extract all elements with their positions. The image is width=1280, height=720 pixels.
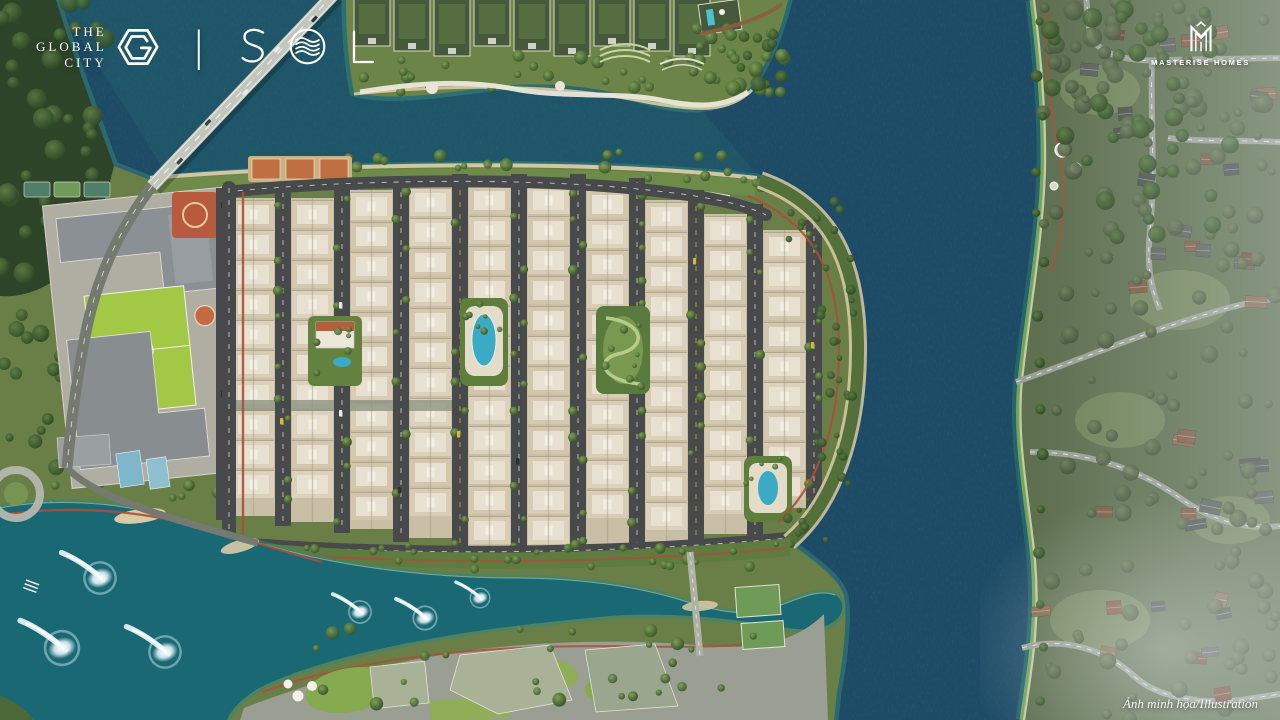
pool-amenity [743,456,792,522]
garden-amenity [596,306,650,394]
playground [172,192,218,238]
masterise-homes-logo: MASTERISE HOMES [1151,20,1250,67]
sports-courts [24,182,110,197]
tennis-court [735,585,781,618]
clubhouse [308,316,362,386]
illustration-disclaimer: Ảnh minh họa/Illustration [1123,696,1258,712]
aerial-render-frame: THE GLOBAL CITY | MASTERISE HOMES Ảnh mi… [0,0,1280,720]
tent [284,680,293,689]
tennis-court [741,621,785,650]
hexagon-g-logo-icon [117,26,159,68]
tent [307,681,317,691]
masterise-wordmark: MASTERISE HOMES [1151,58,1250,67]
global-city-wordmark: THE GLOBAL CITY [36,24,107,70]
townhouse-grid [216,174,823,552]
masterise-m-monogram-icon [1188,20,1214,53]
tent [293,691,304,702]
logo-divider: | [195,27,201,67]
the-global-city-logo: THE GLOBAL CITY | [36,24,378,70]
masterplan-scene [0,0,1280,720]
pool-amenity [460,298,508,386]
waterfront-island [346,0,790,108]
sola-wordmark [238,27,378,67]
